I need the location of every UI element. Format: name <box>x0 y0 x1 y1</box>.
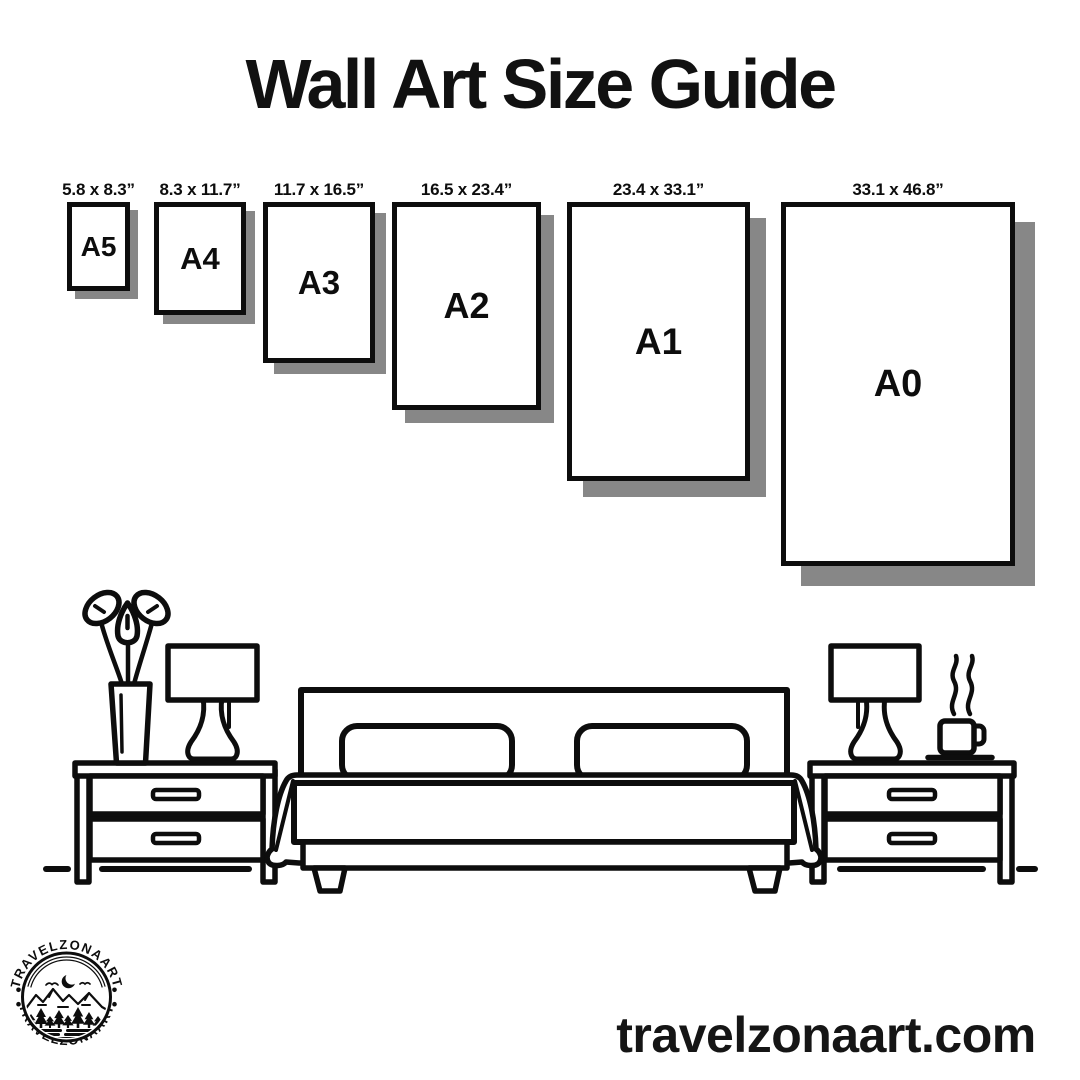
table-lamp-left-icon <box>168 646 257 759</box>
bed-icon <box>267 690 821 891</box>
steam-icon <box>968 656 973 714</box>
bed-base <box>303 842 787 868</box>
nightstand-right-icon <box>810 763 1014 882</box>
drawer-handle-icon <box>889 790 935 799</box>
pillow-icon <box>342 726 512 780</box>
mattress-rail <box>294 783 794 842</box>
bed-foot <box>749 868 780 891</box>
bedroom-illustration <box>0 0 1080 1080</box>
drawer-handle-icon <box>153 790 199 799</box>
vase-flowers-icon <box>79 586 174 763</box>
bed-foot <box>314 868 345 891</box>
brand-logo: TRAVELZONAART TRAVELZONAART <box>0 925 134 1059</box>
website-url: travelzonaart.com <box>606 1006 1046 1064</box>
size-guide-poster: Wall Art Size Guide 5.8 x 8.3” A5 8.3 x … <box>0 0 1080 1080</box>
nightstand-left-icon <box>75 763 275 882</box>
coffee-cup-icon <box>928 656 992 758</box>
pillow-icon <box>577 726 747 780</box>
table-lamp-right-icon <box>831 646 919 759</box>
drawer-handle-icon <box>153 834 199 843</box>
steam-icon <box>952 656 957 714</box>
drawer-handle-icon <box>889 834 935 843</box>
